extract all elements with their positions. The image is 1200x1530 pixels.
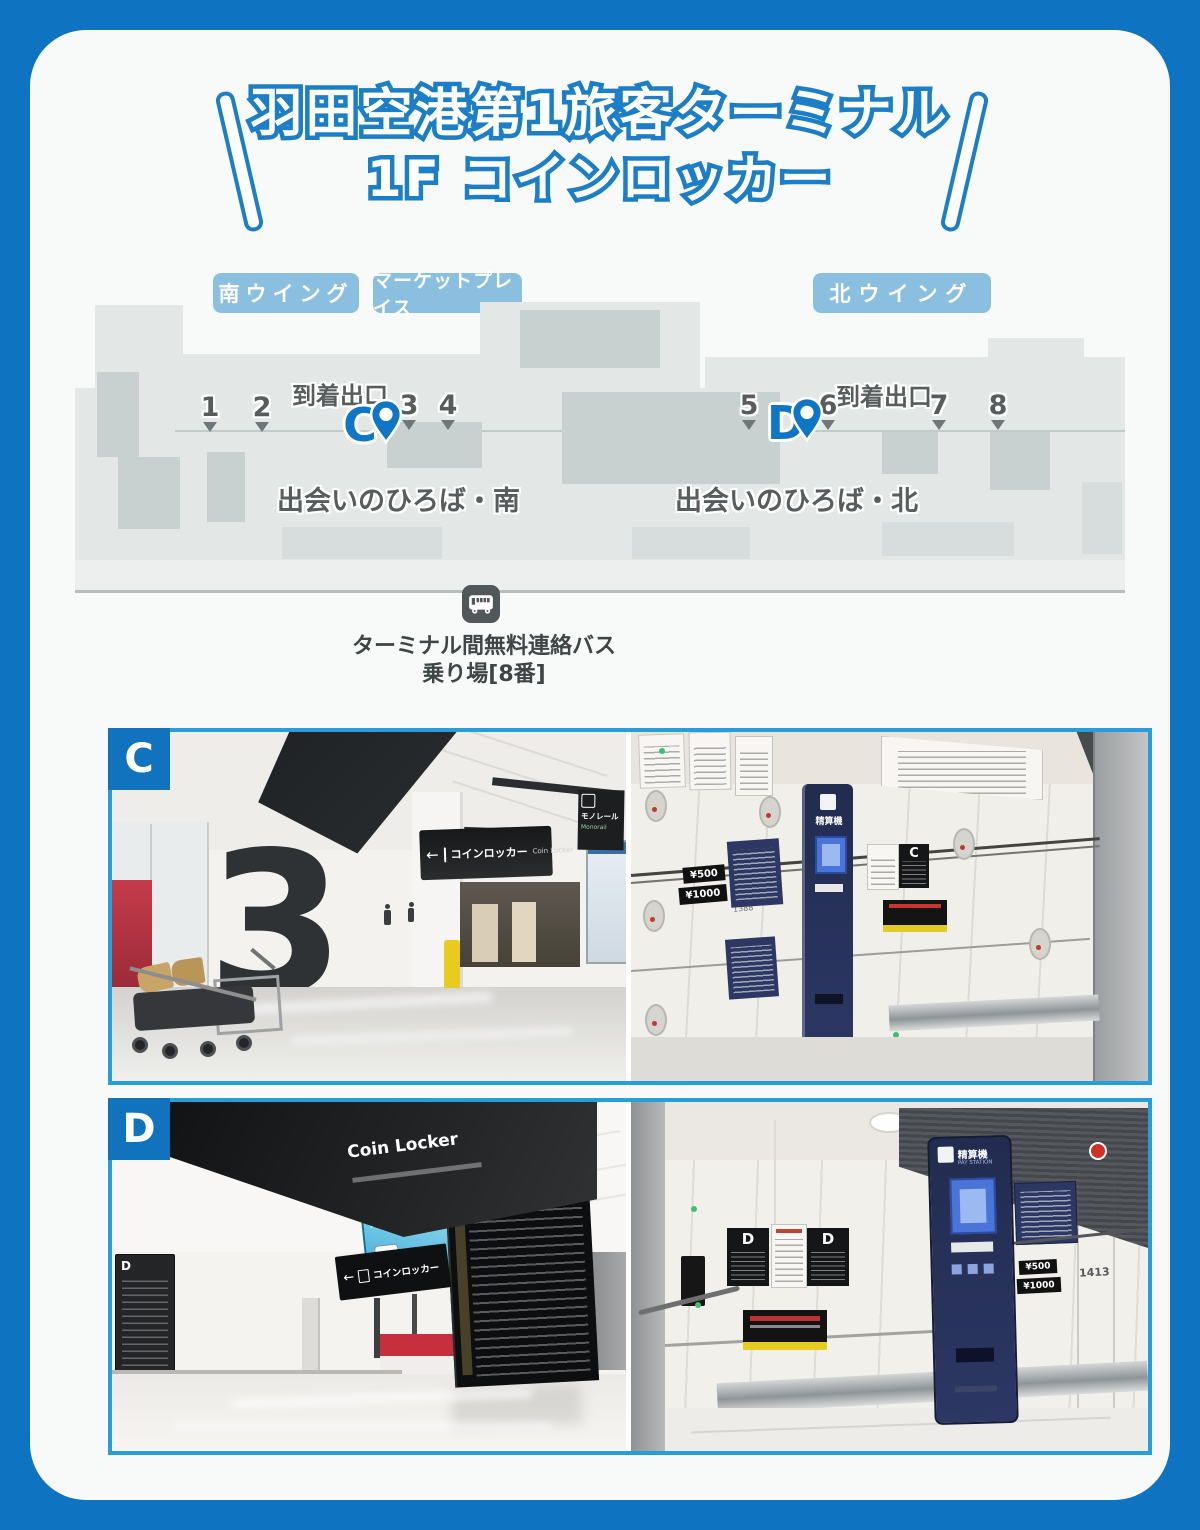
stroller-wheel	[236, 1035, 252, 1051]
machine-label-en: PAY STATION	[958, 1159, 993, 1166]
machine-button	[968, 1264, 978, 1274]
machine-locker-icon	[820, 794, 836, 810]
hanging-string	[774, 1120, 776, 1228]
locker-handle	[1029, 928, 1051, 960]
pay-station-machine: 精算機 PAY STATION	[927, 1135, 1019, 1425]
stroller-cluster	[120, 937, 290, 1072]
locker-number: 1413	[1079, 1265, 1110, 1280]
machine-screen	[949, 1177, 996, 1234]
exit-number-7: 7	[919, 390, 959, 421]
price-label-1000: ¥1000	[1017, 1277, 1062, 1294]
payment-machine: 精算機	[802, 784, 853, 1046]
machine-coin-slot	[815, 994, 843, 1004]
exit-marker-2	[255, 422, 269, 432]
machine-locker-icon	[938, 1146, 954, 1162]
monorail-hanging-sign: モノレール Monorail	[577, 790, 624, 851]
area-sign-d-letter: D	[727, 1230, 769, 1248]
machine-cash-slot	[956, 1347, 994, 1362]
shop-light	[472, 904, 498, 962]
photo-d-lockers: 精算機 PAY STATION ¥500 ¥1000 1413 D	[631, 1102, 1148, 1451]
locker-handle	[645, 790, 667, 822]
map-shape-block	[990, 432, 1050, 490]
machine-vent	[955, 1385, 997, 1392]
plaza-south-label: 出会いのひろば・南	[277, 479, 517, 518]
shop-light	[512, 902, 536, 962]
notice-paper	[688, 732, 731, 790]
locker-handle	[645, 1004, 667, 1036]
warning-red-text-bar	[889, 904, 941, 908]
plaza-north-label: 出会いのひろば・北	[675, 479, 915, 518]
vacancy-indicator	[691, 1206, 697, 1212]
area-sign-d: D	[727, 1228, 769, 1286]
locker-seam	[631, 938, 1090, 972]
map-shape-bottom-strip	[75, 560, 1125, 592]
machine-card-slot	[951, 1241, 993, 1252]
map-pin-c-icon	[367, 398, 405, 446]
person-silhouette	[384, 910, 391, 925]
map-shape-block	[207, 452, 245, 522]
warning-text-bar	[750, 1325, 820, 1328]
warning-sign	[743, 1310, 827, 1350]
monorail-sign-jp: モノレール	[581, 811, 621, 823]
map-shape-block	[882, 432, 938, 474]
map-pin-d-icon	[788, 396, 826, 444]
price-label-500: ¥500	[682, 864, 725, 884]
stroller-wheel	[162, 1043, 178, 1059]
map-shape-block	[632, 527, 750, 559]
floor-reflection	[172, 1422, 552, 1430]
section-c-label: C	[108, 728, 170, 790]
caution-sign	[444, 940, 460, 988]
locker-door-seam	[1113, 1162, 1115, 1442]
title-line1-text: 羽田空港第1旅客ターミナル	[30, 88, 1170, 140]
area-sign-d: D	[807, 1228, 849, 1286]
exit-marker-5	[742, 420, 756, 430]
red-sticker	[1089, 1142, 1107, 1160]
page-title-line1: 羽田空港第1旅客ターミナル 羽田空港第1旅客ターミナル	[30, 88, 1170, 140]
exit-number-2: 2	[242, 392, 282, 423]
instruction-sticker	[727, 838, 783, 907]
map-shape-block	[97, 372, 139, 457]
bus-glyph	[466, 589, 496, 619]
stroller-wheel	[200, 1041, 216, 1057]
coin-locker-sign-en: Coin Locker	[532, 846, 573, 855]
stroller-handle	[250, 948, 276, 970]
baseboard	[888, 995, 1099, 1032]
hanging-sign-jp: コインロッカー	[372, 1259, 440, 1281]
map-shape-block	[520, 310, 660, 368]
exit-marker-4	[441, 420, 455, 430]
exit-number-4: 4	[428, 390, 468, 421]
arrow-left-icon: ←	[342, 1269, 355, 1285]
person-silhouette	[408, 908, 414, 922]
area-sign-d-letter: D	[807, 1230, 849, 1248]
baseboard	[717, 1361, 1148, 1414]
monorail-pictogram-icon	[581, 794, 595, 808]
section-c-photos: C 3 ← コインロッカー	[108, 728, 1152, 1085]
area-sign-c: C	[899, 844, 929, 888]
exit-marker-7	[932, 420, 946, 430]
machine-card-slot	[815, 884, 843, 892]
section-d-photos: D Coin Locker ← コインロッカー 全国2	[108, 1098, 1152, 1455]
locker-handle	[953, 828, 975, 860]
warning-red-text-bar	[750, 1316, 820, 1321]
bus-icon	[462, 585, 500, 623]
terminal-floor-map: 到着出口 到着出口 1 2 3 4 5 6 7 8 C D 出会いのひろば・南 …	[75, 272, 1125, 597]
map-shape-block	[1082, 482, 1122, 554]
coin-locker-sign-jp: コインロッカー	[450, 844, 528, 863]
pillar	[302, 1298, 320, 1374]
locker-pictogram-icon	[357, 1268, 370, 1282]
notice-red-title-bar	[776, 1229, 802, 1233]
locker-door-seam	[1077, 1162, 1079, 1442]
vacancy-indicator	[695, 1302, 701, 1308]
exit-marker-1	[203, 422, 217, 432]
floor	[631, 1037, 1093, 1081]
machine-label: 精算機	[805, 814, 853, 827]
notice-paper	[638, 733, 686, 789]
floor-map-lightbox	[586, 840, 626, 964]
vacancy-indicator	[659, 748, 665, 754]
instruction-sticker	[725, 936, 779, 999]
locker-pictogram-icon	[443, 847, 446, 862]
monorail-sign-en: Monorail	[581, 824, 621, 832]
map-shape-block	[882, 522, 1014, 556]
ceiling-sign-subtext-bar	[352, 1162, 482, 1183]
area-notice-paper	[867, 844, 899, 890]
title-line2-text: 1F コインロッカー	[30, 154, 1170, 204]
left-pillar	[631, 1102, 665, 1451]
locker-handle	[759, 796, 781, 828]
notice-paper	[735, 736, 773, 796]
photo-c-corridor: 3 ← コインロッカー Coin Locker モノレール Monorail	[112, 732, 626, 1081]
page-title-line2: 1F コインロッカー 1F コインロッカー	[30, 154, 1170, 204]
warning-yellow-strip	[743, 1342, 827, 1350]
map-shape-block	[282, 527, 442, 559]
machine-button	[984, 1263, 994, 1273]
map-shape-block	[118, 457, 180, 529]
area-sign-c-letter: C	[899, 846, 929, 861]
arrow-left-icon: ←	[426, 846, 439, 864]
machine-button	[952, 1264, 962, 1274]
map-shape-bottom-edge	[75, 590, 1125, 593]
warning-yellow-strip	[883, 925, 947, 932]
photo-d-corridor: Coin Locker ← コインロッカー 全国20万件の荷物預かり	[112, 1102, 626, 1451]
right-wall	[1093, 732, 1148, 1081]
ceiling-sign-text-en: Coin Locker	[346, 1129, 459, 1162]
photo-c-lockers: 精算機 ¥500 ¥1000 1388 C	[631, 732, 1148, 1081]
exit-number-1: 1	[190, 392, 230, 423]
bus-note-line2: 乗り場[8番]	[294, 656, 674, 688]
price-label-1000: ¥1000	[678, 884, 727, 905]
price-label-500: ¥500	[1019, 1259, 1058, 1275]
section-d-label: D	[108, 1098, 170, 1160]
title-block: 羽田空港第1旅客ターミナル 羽田空港第1旅客ターミナル 1F コインロッカー 1…	[30, 88, 1170, 233]
machine-screen	[815, 836, 847, 874]
info-board-label-d: D	[121, 1259, 131, 1273]
board-rows	[468, 1199, 591, 1377]
stroller-wheel	[132, 1037, 148, 1053]
warning-sign	[883, 900, 947, 932]
locker-handle	[643, 900, 665, 932]
coin-locker-hanging-sign: ← コインロッカー Coin Locker	[419, 826, 553, 881]
exit-number-8: 8	[978, 390, 1018, 421]
page-background: 羽田空港第1旅客ターミナル 羽田空港第1旅客ターミナル 1F コインロッカー 1…	[0, 0, 1200, 1530]
exit-marker-8	[991, 420, 1005, 430]
content-card: 羽田空港第1旅客ターミナル 羽田空港第1旅客ターミナル 1F コインロッカー 1…	[30, 30, 1170, 1500]
hanging-notice-paper	[771, 1224, 807, 1288]
